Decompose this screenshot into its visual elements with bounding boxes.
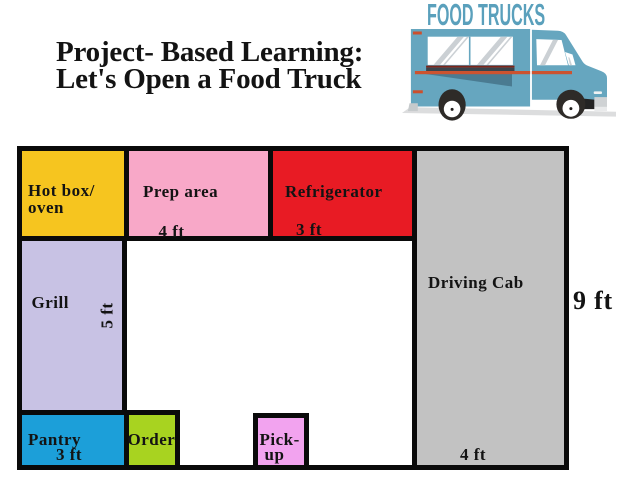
svg-text:FOOD TRUCKS: FOOD TRUCKS [427,0,545,33]
